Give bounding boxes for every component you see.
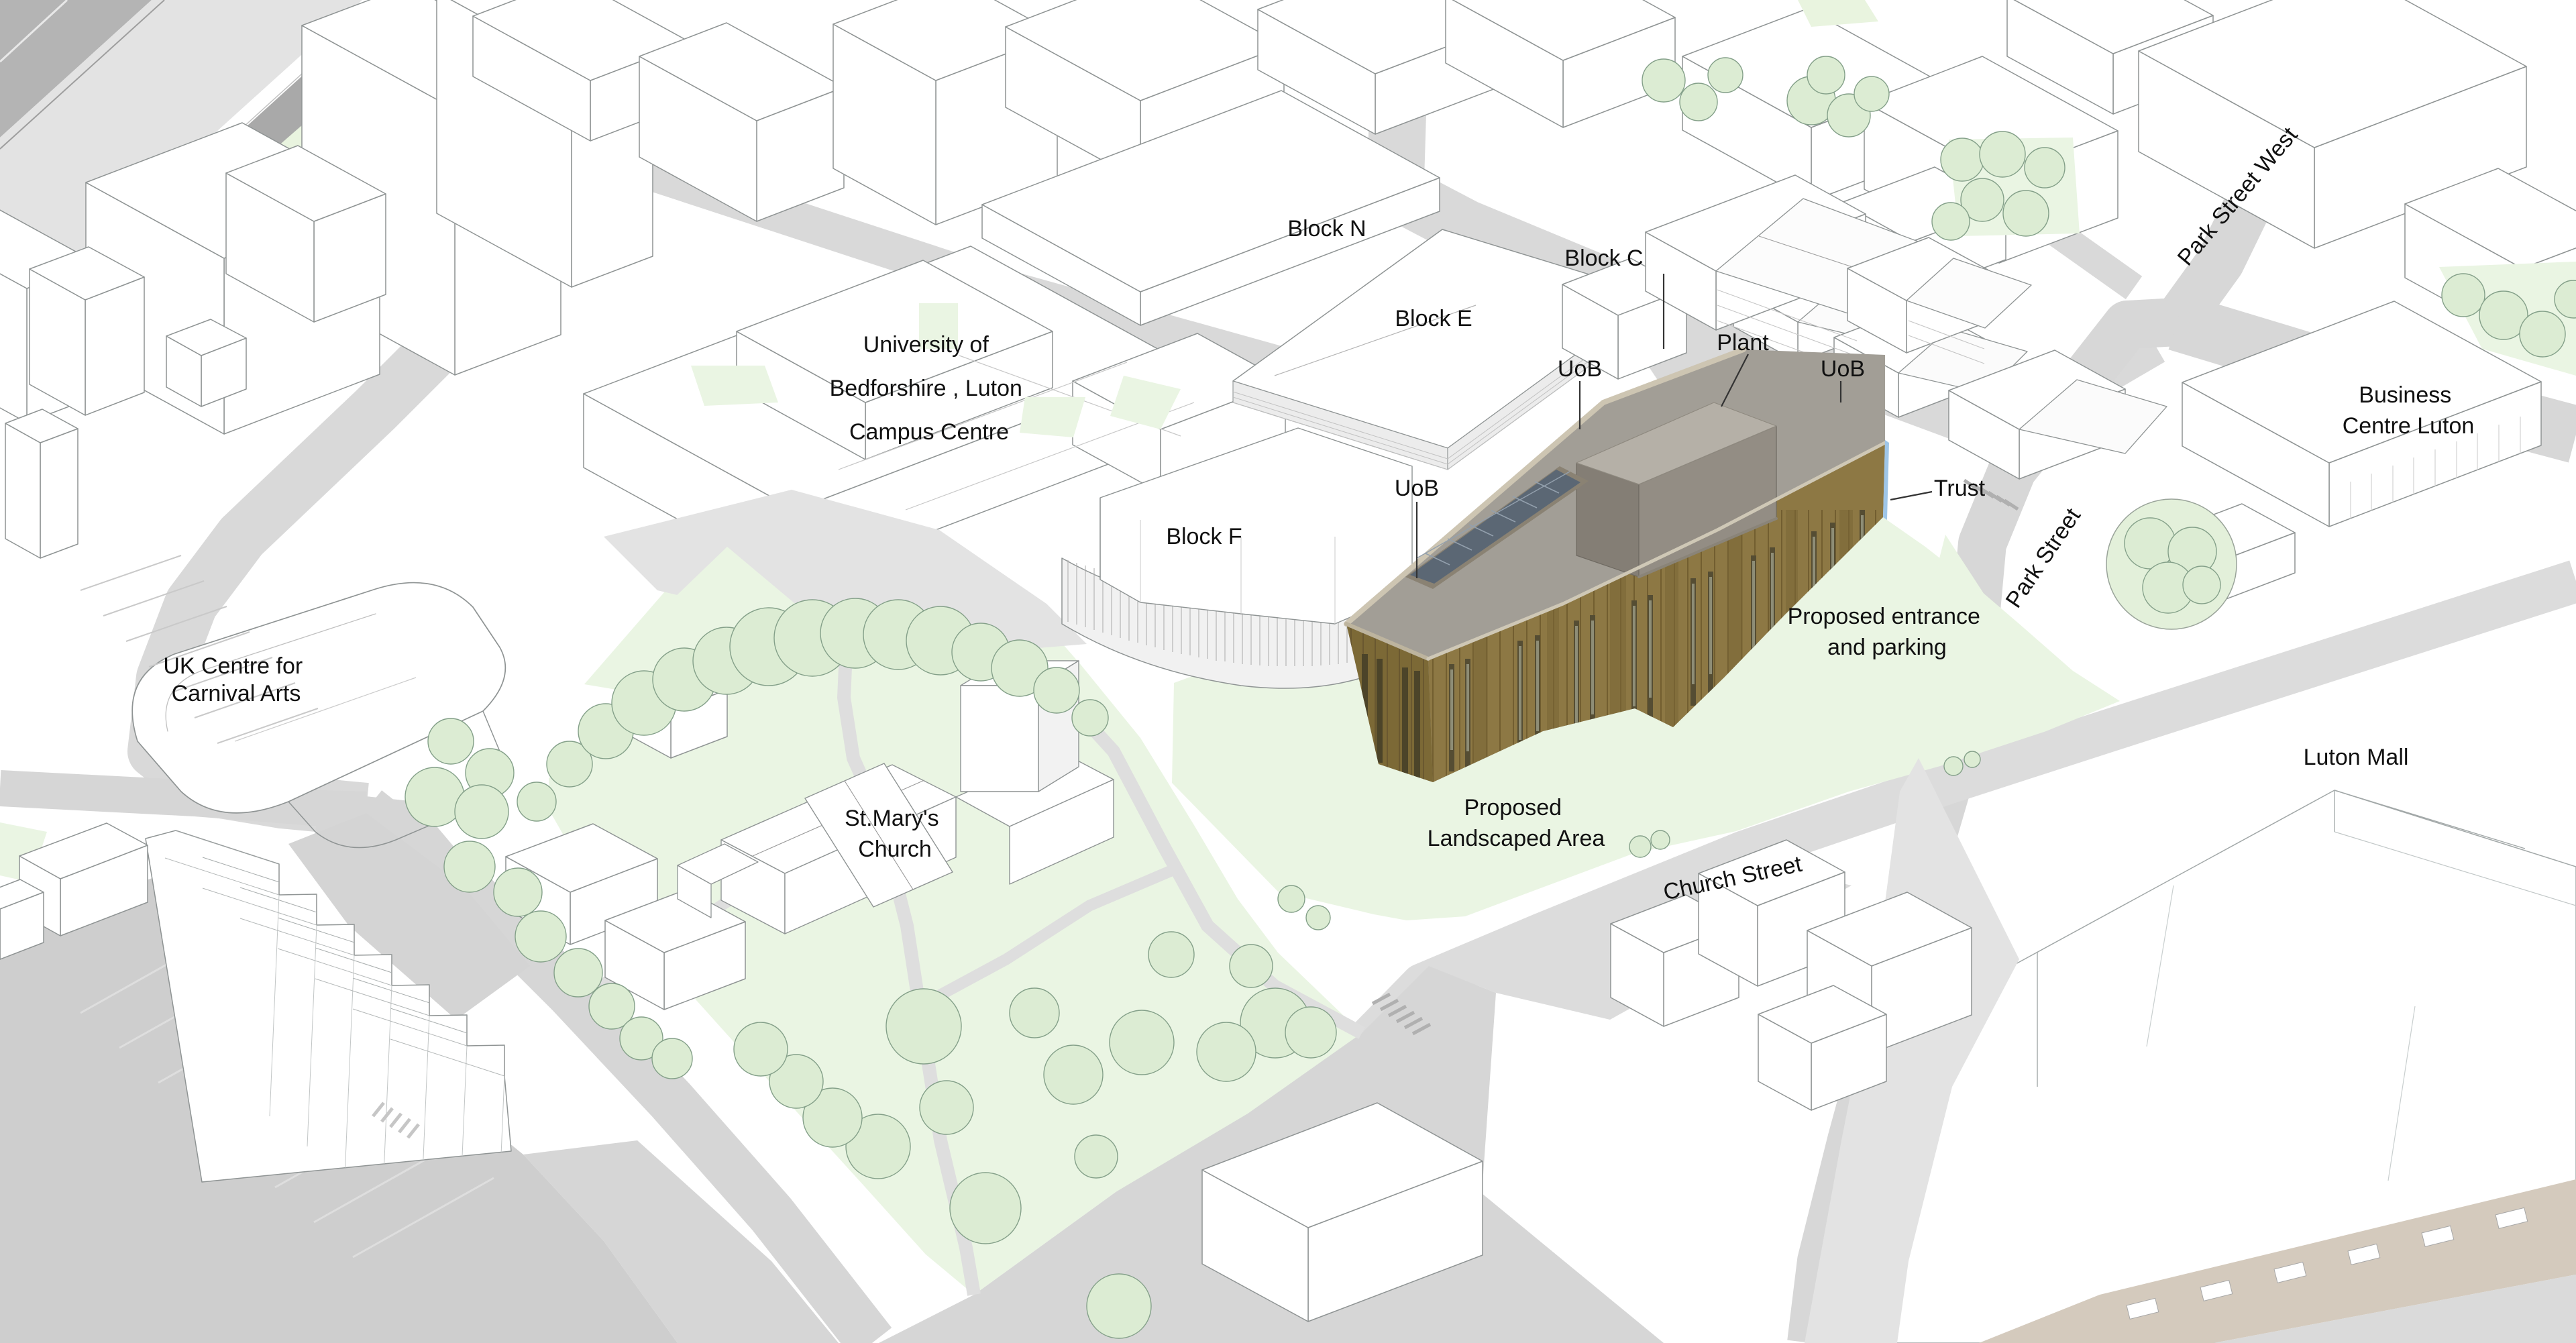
svg-text:UoB: UoB [1558, 356, 1602, 382]
svg-text:UoB: UoB [1395, 476, 1439, 501]
svg-text:Trust: Trust [1934, 476, 1986, 501]
svg-text:UoB: UoB [1821, 356, 1865, 382]
svg-text:Block E: Block E [1395, 306, 1472, 331]
svg-text:Luton Mall: Luton Mall [2304, 745, 2409, 770]
svg-text:Block N: Block N [1287, 216, 1366, 241]
svg-text:Plant: Plant [1717, 330, 1769, 356]
svg-text:Block F: Block F [1166, 524, 1242, 549]
svg-text:Block C: Block C [1564, 246, 1643, 271]
